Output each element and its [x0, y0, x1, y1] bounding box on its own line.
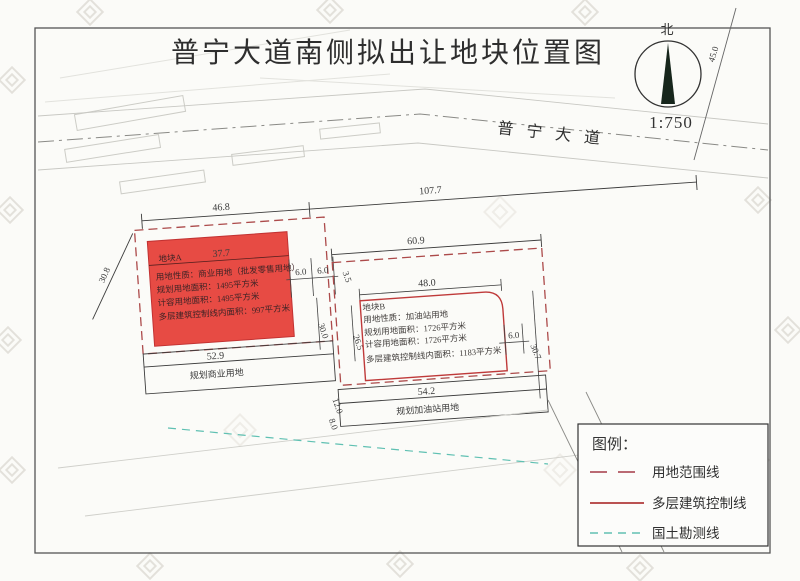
scanned-plot-map: 普宁大道南侧拟出让地块位置图 普宁大道 北 1:750 45.0 46.8 10…: [0, 0, 800, 581]
dim-a-height: 30.0: [316, 322, 331, 341]
dim-b-gap: 6.0: [508, 330, 520, 341]
legend-item-survey: 国土勘测线: [652, 526, 720, 541]
avenue-width-line: [694, 8, 736, 160]
dimline-b-top: [331, 234, 541, 262]
dim-b-width: 48.0: [418, 277, 436, 289]
commercial-zone-label: 规划商业用地: [189, 366, 244, 381]
dimline-b-left: [351, 305, 355, 361]
legend: 图例： 用地范围线 多层建筑控制线 国土勘测线: [578, 424, 768, 546]
plot-b-label: 地块B: [362, 301, 386, 313]
gas-zone-box: [338, 375, 548, 426]
north-compass: 北 1:750 45.0: [635, 8, 736, 160]
plot-a-label: 地块A: [158, 252, 183, 264]
avenue: 普宁大道: [38, 89, 768, 178]
map-canvas: 普宁大道南侧拟出让地块位置图 普宁大道 北 1:750 45.0 46.8 10…: [0, 0, 800, 581]
legend-title: 图例：: [592, 436, 637, 453]
legend-item-boundary: 用地范围线: [652, 465, 720, 480]
avenue-label: 普宁大道: [497, 119, 614, 149]
survey-line: [168, 428, 548, 464]
dim-b-top-offset: 3.5: [341, 270, 354, 284]
plot-drawing: 46.8 107.7 地块A 37.7 用地性质：商业用地（批发零售用地） 规划…: [85, 167, 712, 447]
dim-a-width: 37.7: [212, 248, 230, 260]
dim-a-top: 46.8: [212, 202, 230, 214]
dim-b-top: 60.9: [407, 235, 425, 247]
dimline-a-left: [87, 233, 139, 319]
dim-a-gap1: 6.0: [295, 266, 307, 277]
dim-gas-left-top: 12.0: [330, 397, 345, 416]
dim-gas-width: 54.2: [417, 386, 435, 398]
dim-gas-left-bottom: 8.0: [327, 417, 340, 431]
page-title: 普宁大道南侧拟出让地块位置图: [171, 37, 605, 69]
avenue-edge-lower: [38, 143, 768, 178]
dim-a-bottom: 52.9: [206, 350, 224, 362]
north-label: 北: [660, 22, 673, 37]
compass-needle-icon: [661, 43, 675, 104]
dim-avenue-width: 45.0: [706, 45, 720, 63]
legend-item-control: 多层建筑控制线: [652, 495, 747, 511]
dim-a-gap2: 6.0: [317, 265, 329, 276]
dim-b-right: 30.7: [528, 343, 543, 362]
building-outlines: [65, 96, 381, 194]
gas-zone-label: 规划加油站用地: [396, 401, 460, 416]
dim-road-top: 107.7: [419, 185, 442, 198]
scale-label: 1:750: [649, 113, 693, 132]
